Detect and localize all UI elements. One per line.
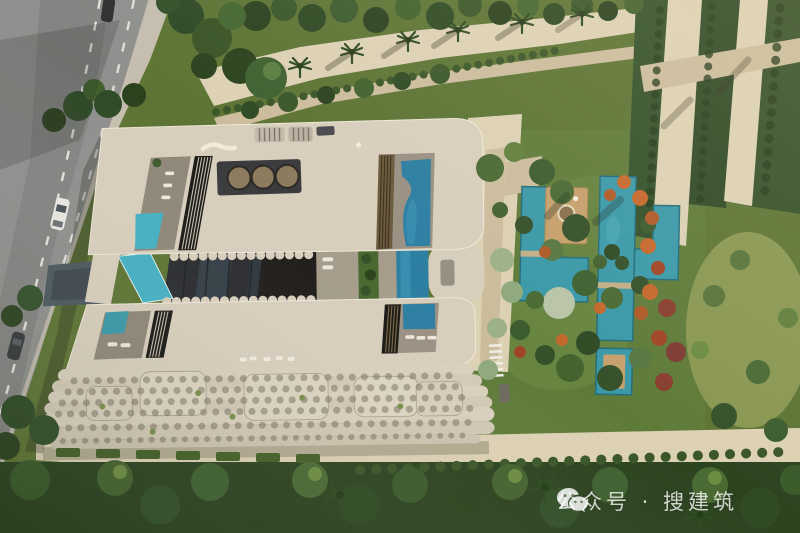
wechat-icon xyxy=(556,486,590,516)
watermark: 公众号 · 搜建筑 xyxy=(556,486,738,516)
aerial-render-canvas: 公众号 · 搜建筑 xyxy=(0,0,800,533)
light-overlay xyxy=(0,0,800,533)
aerial-render xyxy=(0,0,800,533)
